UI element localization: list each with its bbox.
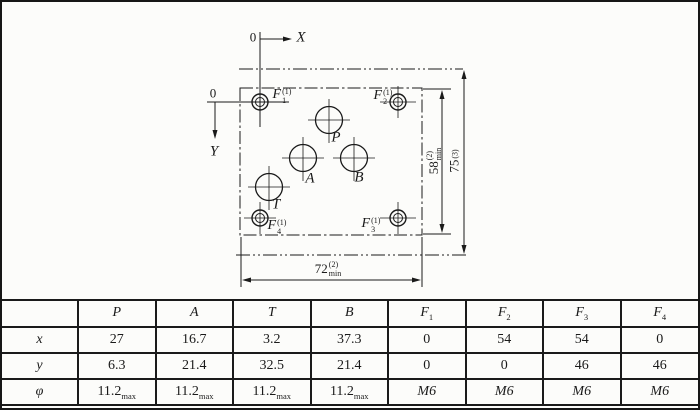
y-axis-arrow-icon (213, 130, 218, 139)
table-cell: 6.3 (78, 353, 156, 379)
table-cell: 27 (78, 327, 156, 353)
hole-p (308, 99, 350, 143)
table-cell: 54 (466, 327, 544, 353)
hole-label-f3-indices: (1)3 (371, 216, 380, 234)
port-label-t: T (272, 198, 280, 213)
table-header-row: P A T B F1 F2 F3 F4 (2, 300, 698, 327)
port-label-p: P (331, 131, 340, 146)
table-cell: 11.2max (233, 379, 311, 405)
row-label-x: x (2, 327, 78, 353)
hole-label-f1-indices: (1)1 (282, 87, 291, 105)
table-cell: 37.3 (311, 327, 389, 353)
table-cell: M6 (388, 379, 466, 405)
hole-label-f2: F(1)2 (374, 87, 393, 105)
table-cell: 11.2max (78, 379, 156, 405)
column-header: P (78, 300, 156, 327)
column-header: F2 (466, 300, 544, 327)
dimension-75-indices: (3) (450, 149, 459, 158)
hole-label-f1: F(1)1 (273, 86, 292, 104)
plate-outline (240, 88, 422, 235)
drawing-sheet: 0 X 0 Y P A B T F(1)1 F(1)2 F(1)3 F(1)4 … (0, 0, 700, 410)
hole-t (248, 166, 290, 210)
dimension-label-58min: 58(2)min (424, 148, 442, 174)
table-cell: M6 (621, 379, 699, 405)
column-header: A (156, 300, 234, 327)
table-cell: 16.7 (156, 327, 234, 353)
dimension-75-value: 75 (448, 160, 461, 173)
hole-a (282, 137, 324, 181)
row-label-y: y (2, 353, 78, 379)
table-cell: 32.5 (233, 353, 311, 379)
hole-f1 (246, 86, 276, 118)
table-cell: 54 (543, 327, 621, 353)
hole-f3 (380, 202, 416, 234)
column-header: T (233, 300, 311, 327)
origin-left-label: 0 (210, 87, 217, 100)
table-cell: 0 (466, 353, 544, 379)
table-cell: 11.2max (156, 379, 234, 405)
drawing-linework (2, 2, 698, 299)
table-cell: 0 (388, 327, 466, 353)
table-cell: 21.4 (156, 353, 234, 379)
hole-label-f4: F(1)4 (268, 217, 287, 235)
port-coordinates-table: P A T B F1 F2 F3 F4 x 27 16.7 3.2 37.3 0… (2, 299, 698, 406)
hole-label-f4-base: F (268, 219, 277, 233)
x-axis-label: X (296, 31, 305, 46)
corner-cell (2, 300, 78, 327)
dimension-72-value: 72 (315, 262, 328, 275)
dimension-label-75: 75(3) (448, 149, 461, 172)
hole-label-f4-indices: (1)4 (277, 218, 286, 236)
table-cell: 3.2 (233, 327, 311, 353)
column-header: F4 (621, 300, 699, 327)
column-header: F3 (543, 300, 621, 327)
port-label-b: B (354, 171, 363, 186)
hole-label-f3-base: F (362, 217, 371, 231)
hole-label-f2-base: F (374, 89, 383, 103)
table-cell: 0 (621, 327, 699, 353)
table-cell: 21.4 (311, 353, 389, 379)
y-axis-label: Y (210, 145, 218, 160)
table-cell: 11.2max (311, 379, 389, 405)
dimension-72-indices: (2)min (329, 260, 341, 278)
dimension-58-value: 58 (427, 161, 440, 174)
column-header: B (311, 300, 389, 327)
table-row-diameter: φ 11.2max 11.2max 11.2max 11.2max M6 M6 … (2, 379, 698, 405)
table-cell: 0 (388, 353, 466, 379)
table-row-x: x 27 16.7 3.2 37.3 0 54 54 0 (2, 327, 698, 353)
column-header: F1 (388, 300, 466, 327)
origin-top-label: 0 (250, 31, 257, 44)
port-label-a: A (305, 172, 314, 187)
dimension-75 (462, 70, 467, 254)
table-cell: M6 (466, 379, 544, 405)
table-cell: M6 (543, 379, 621, 405)
table-cell: 46 (543, 353, 621, 379)
mounting-surface-drawing: 0 X 0 Y P A B T F(1)1 F(1)2 F(1)3 F(1)4 … (2, 2, 698, 299)
x-axis-arrow-icon (283, 37, 292, 42)
hole-label-f1-base: F (273, 88, 282, 102)
hole-label-f2-indices: (1)2 (383, 88, 392, 106)
dimension-label-72min: 72(2)min (315, 259, 341, 277)
hole-label-f3: F(1)3 (362, 215, 381, 233)
table-row-y: y 6.3 21.4 32.5 21.4 0 0 46 46 (2, 353, 698, 379)
dimension-58-indices: (2)min (425, 148, 443, 160)
table-cell: 46 (621, 353, 699, 379)
row-label-phi: φ (2, 379, 78, 405)
